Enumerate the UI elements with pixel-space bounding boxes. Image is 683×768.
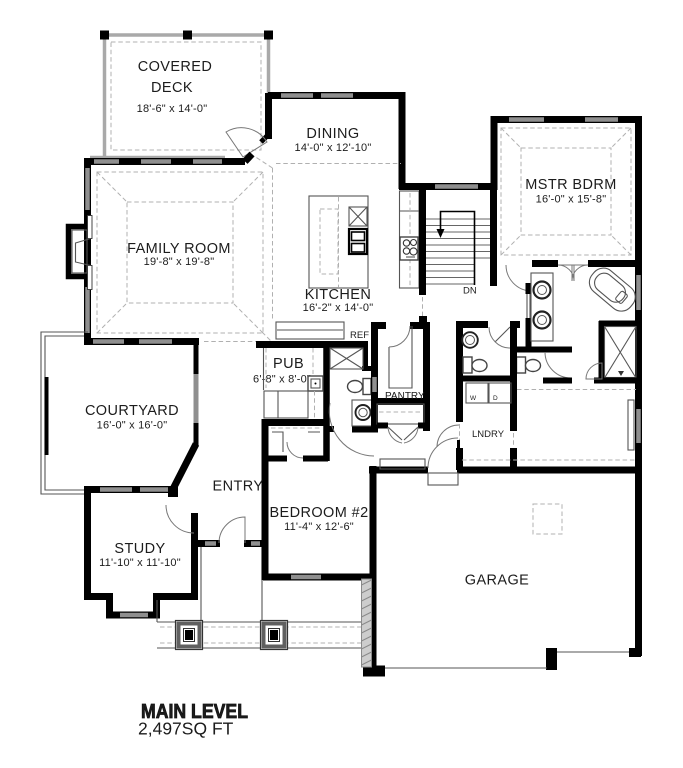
svg-text:KITCHEN: KITCHEN (305, 287, 371, 303)
svg-text:11'-4" x 12'-6": 11'-4" x 12'-6" (284, 521, 354, 533)
svg-text:PANTRY: PANTRY (385, 391, 425, 402)
svg-text:REF: REF (350, 330, 369, 341)
svg-text:DINING: DINING (306, 126, 359, 142)
svg-text:ENTRY: ENTRY (213, 479, 264, 495)
svg-text:DECK: DECK (151, 80, 193, 96)
svg-text:14'-0" x 12'-10": 14'-0" x 12'-10" (295, 142, 372, 154)
svg-text:PUB: PUB (273, 356, 304, 372)
svg-text:MSTR BDRM: MSTR BDRM (525, 177, 616, 193)
svg-text:D: D (493, 395, 498, 402)
svg-text:11'-10" x 11'-10": 11'-10" x 11'-10" (99, 557, 181, 569)
svg-text:16'-0" x 15'-8": 16'-0" x 15'-8" (536, 194, 607, 206)
svg-text:W: W (470, 395, 477, 402)
svg-text:2,497SQ FT: 2,497SQ FT (138, 719, 234, 739)
svg-text:LNDRY: LNDRY (472, 429, 505, 440)
svg-text:GARAGE: GARAGE (465, 573, 529, 589)
svg-text:6'-8" x 8'-0": 6'-8" x 8'-0" (253, 374, 311, 386)
svg-text:19'-8" x 19'-8": 19'-8" x 19'-8" (144, 256, 215, 268)
svg-text:DN: DN (463, 286, 477, 297)
svg-text:STUDY: STUDY (114, 541, 165, 557)
svg-text:16'-0" x 16'-0": 16'-0" x 16'-0" (97, 420, 168, 432)
svg-text:BEDROOM #2: BEDROOM #2 (269, 505, 368, 521)
svg-text:COVERED: COVERED (138, 59, 213, 75)
svg-text:16'-2" x 14'-0": 16'-2" x 14'-0" (303, 302, 374, 314)
svg-text:18'-6" x 14'-0": 18'-6" x 14'-0" (137, 103, 208, 115)
svg-text:COURTYARD: COURTYARD (85, 403, 179, 419)
svg-text:FAMILY ROOM: FAMILY ROOM (127, 241, 231, 257)
